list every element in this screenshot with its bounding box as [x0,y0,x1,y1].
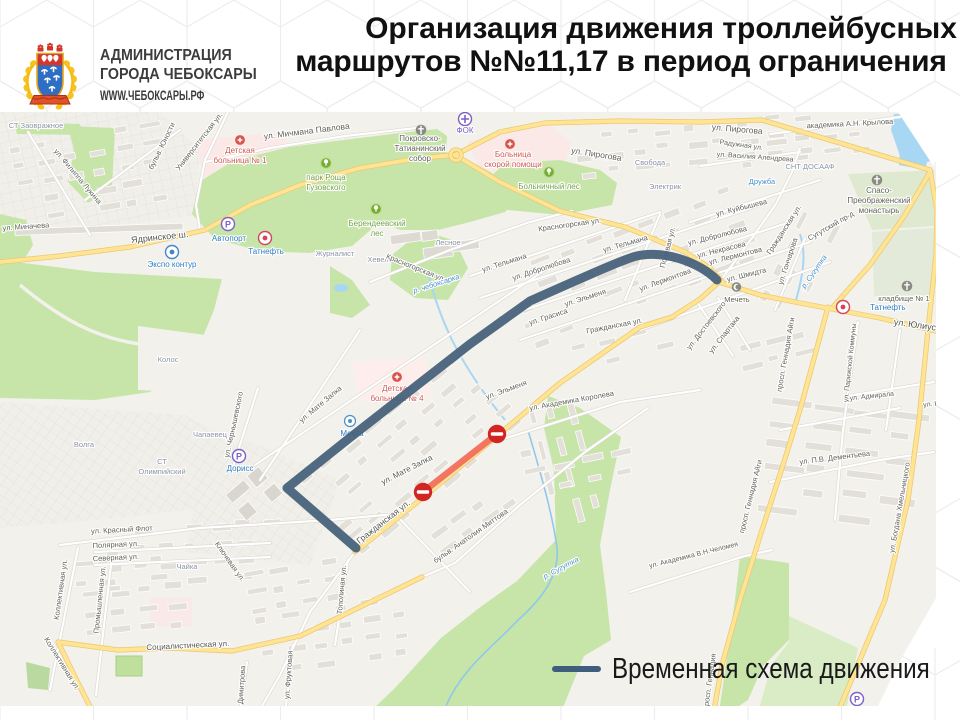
svg-text:P: P [236,452,242,462]
svg-text:Покровско-: Покровско- [399,134,441,143]
svg-text:Лесное: Лесное [435,238,460,247]
svg-text:Берендеевский: Берендеевский [348,219,405,228]
svg-text:Мечеть: Мечеть [724,295,750,304]
svg-text:Больничный лес: Больничный лес [518,182,579,191]
svg-text:Преображенский: Преображенский [847,196,910,205]
svg-text:P: P [854,695,860,705]
svg-text:Больница: Больница [495,150,532,159]
svg-text:Татнефть: Татнефть [870,303,906,312]
svg-text:Олимпийский: Олимпийский [138,467,185,476]
svg-text:Детская: Детская [225,146,255,155]
svg-text:больница № 1: больница № 1 [213,156,267,165]
svg-text:Татианинский: Татианинский [394,144,445,153]
svg-text:собор: собор [409,154,432,163]
svg-text:P: P [225,220,231,230]
svg-text:Чапаевец: Чапаевец [193,430,228,439]
svg-text:Спасо-: Спасо- [866,186,892,195]
svg-text:Татнефть: Татнефть [248,247,284,256]
svg-text:Журналист: Журналист [316,249,355,258]
svg-text:парк Роща: парк Роща [306,173,346,182]
svg-text:кладбище № 1: кладбище № 1 [878,294,929,303]
svg-text:ФОК: ФОК [457,126,474,135]
svg-text:СТ Заовражное: СТ Заовражное [9,121,64,130]
svg-text:скорой помощи: скорой помощи [484,160,541,169]
svg-text:Гузовского: Гузовского [306,183,346,192]
svg-text:СНТ ДОСААФ: СНТ ДОСААФ [785,162,834,171]
svg-text:Электрик: Электрик [649,182,682,191]
svg-text:монастырь: монастырь [859,206,900,215]
svg-text:Волга: Волга [74,440,95,449]
svg-text:лес: лес [370,229,383,238]
svg-text:Дорисс: Дорисс [227,464,254,473]
svg-text:Чайка: Чайка [177,562,199,571]
svg-text:СТ: СТ [157,457,167,466]
svg-text:Автопорт: Автопорт [212,234,246,243]
svg-text:Колос: Колос [158,355,179,364]
svg-text:Экспо контур: Экспо контур [148,260,197,269]
svg-text:Свобода: Свобода [635,158,666,167]
svg-text:Дружба: Дружба [749,177,776,186]
